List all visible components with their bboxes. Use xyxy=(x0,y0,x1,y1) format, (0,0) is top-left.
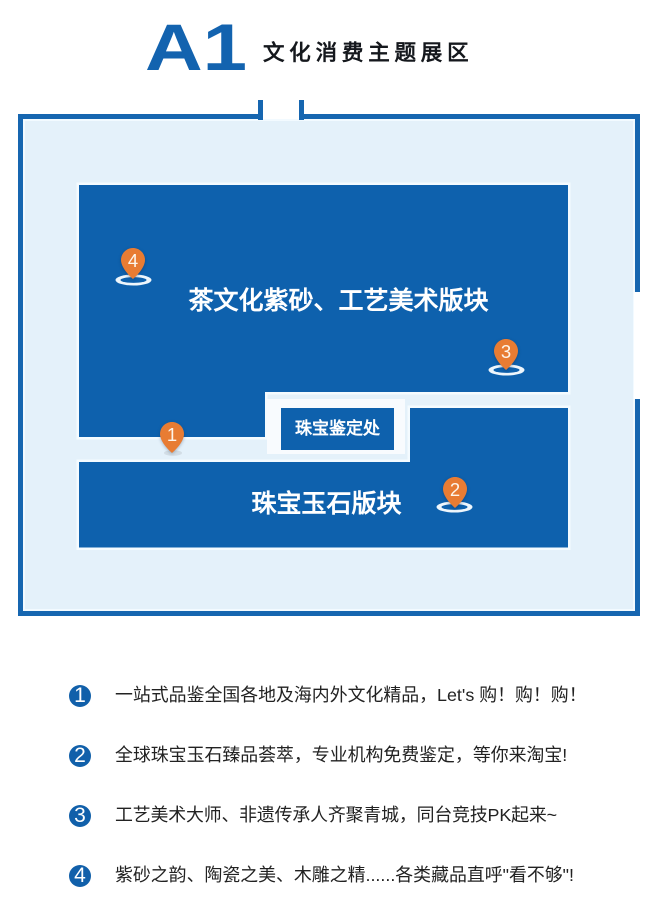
svg-text:2: 2 xyxy=(450,479,460,500)
svg-text:3: 3 xyxy=(501,341,511,362)
svg-text:4: 4 xyxy=(128,250,138,271)
svg-text:1: 1 xyxy=(167,424,177,445)
